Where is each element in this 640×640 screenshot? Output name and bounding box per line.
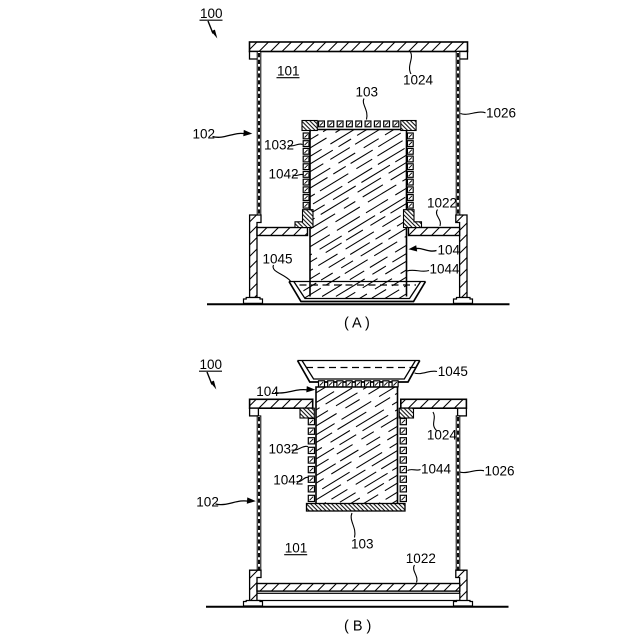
svg-text:1032: 1032 xyxy=(264,138,294,153)
svg-text:101: 101 xyxy=(277,64,300,79)
svg-text:1045: 1045 xyxy=(263,252,293,267)
svg-text:( A ): ( A ) xyxy=(344,316,370,332)
svg-text:101: 101 xyxy=(285,541,308,556)
svg-text:1042: 1042 xyxy=(269,167,299,182)
svg-text:100: 100 xyxy=(200,6,223,21)
svg-text:104: 104 xyxy=(256,384,279,399)
svg-text:( B ): ( B ) xyxy=(344,619,371,635)
svg-text:1026: 1026 xyxy=(486,106,516,121)
svg-text:1022: 1022 xyxy=(406,551,436,566)
svg-text:1032: 1032 xyxy=(269,442,299,457)
svg-text:1045: 1045 xyxy=(438,364,468,379)
svg-text:1044: 1044 xyxy=(430,262,461,277)
svg-text:103: 103 xyxy=(351,537,374,552)
svg-text:1026: 1026 xyxy=(485,464,515,479)
svg-text:104: 104 xyxy=(438,243,461,258)
svg-text:1042: 1042 xyxy=(273,473,303,488)
svg-text:1024: 1024 xyxy=(403,73,434,88)
svg-text:1024: 1024 xyxy=(427,428,458,443)
svg-text:100: 100 xyxy=(200,357,223,372)
svg-text:102: 102 xyxy=(196,495,219,510)
svg-text:1044: 1044 xyxy=(421,462,452,477)
svg-text:1022: 1022 xyxy=(427,196,457,211)
svg-text:102: 102 xyxy=(193,127,216,142)
svg-text:103: 103 xyxy=(356,85,379,100)
